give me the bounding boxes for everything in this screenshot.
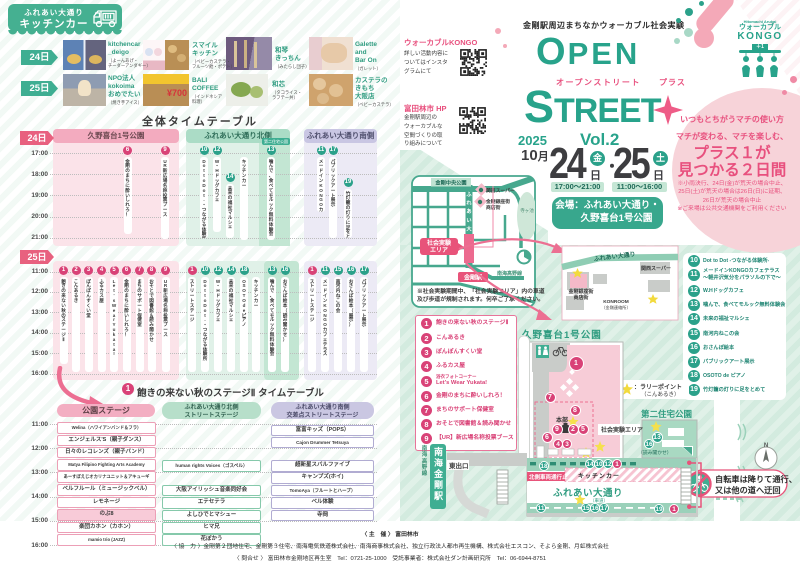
- svg-text:社会実験エリア: 社会実験エリア: [600, 426, 643, 434]
- svg-text:（読み聞かせ）: （読み聞かせ）: [638, 449, 672, 456]
- svg-text:北側車両通行止: 北側車両通行止: [529, 473, 568, 481]
- svg-text:又は他の道へ迂回: 又は他の道へ迂回: [714, 485, 781, 495]
- svg-text:金剛銀座街: 金剛銀座街: [485, 198, 510, 205]
- svg-text:商店街: 商店街: [573, 294, 588, 301]
- svg-text:第二住宅公園: 第二住宅公園: [641, 409, 692, 419]
- svg-text:久野喜台1号公園: 久野喜台1号公園: [522, 329, 602, 341]
- svg-text:金剛中央公園: 金剛中央公園: [434, 179, 466, 187]
- svg-text:関西スーパー: 関西スーパー: [486, 187, 515, 194]
- svg-text:関西スーパー: 関西スーパー: [641, 265, 671, 272]
- svg-text:（金剛連絡所）: （金剛連絡所）: [601, 304, 630, 311]
- svg-text:南海高野線: 南海高野線: [497, 270, 522, 277]
- svg-text:及び歩道が規制されます。何卒ご了承ください。: 及び歩道が規制されます。何卒ご了承ください。: [417, 295, 544, 303]
- svg-text:自転車は降りて通行、: 自転車は降りて通行、: [715, 474, 797, 484]
- svg-text:本部: 本部: [556, 416, 568, 424]
- svg-text:キッチンカー: キッチンカー: [578, 473, 620, 480]
- svg-text:N: N: [764, 443, 768, 449]
- svg-text:金剛銀座街: 金剛銀座街: [567, 288, 593, 295]
- svg-text:社会実験: 社会実験: [426, 239, 452, 247]
- svg-text:東出口: 東出口: [449, 461, 469, 470]
- svg-text:エリア: エリア: [430, 247, 448, 254]
- svg-text:ふれあい大通り: ふれあい大通り: [553, 487, 623, 499]
- svg-text:※社会実験期間中、「社会実験エリア」内の車道: ※社会実験期間中、「社会実験エリア」内の車道: [417, 287, 545, 295]
- svg-text:寺ヶ池: 寺ヶ池: [520, 207, 534, 214]
